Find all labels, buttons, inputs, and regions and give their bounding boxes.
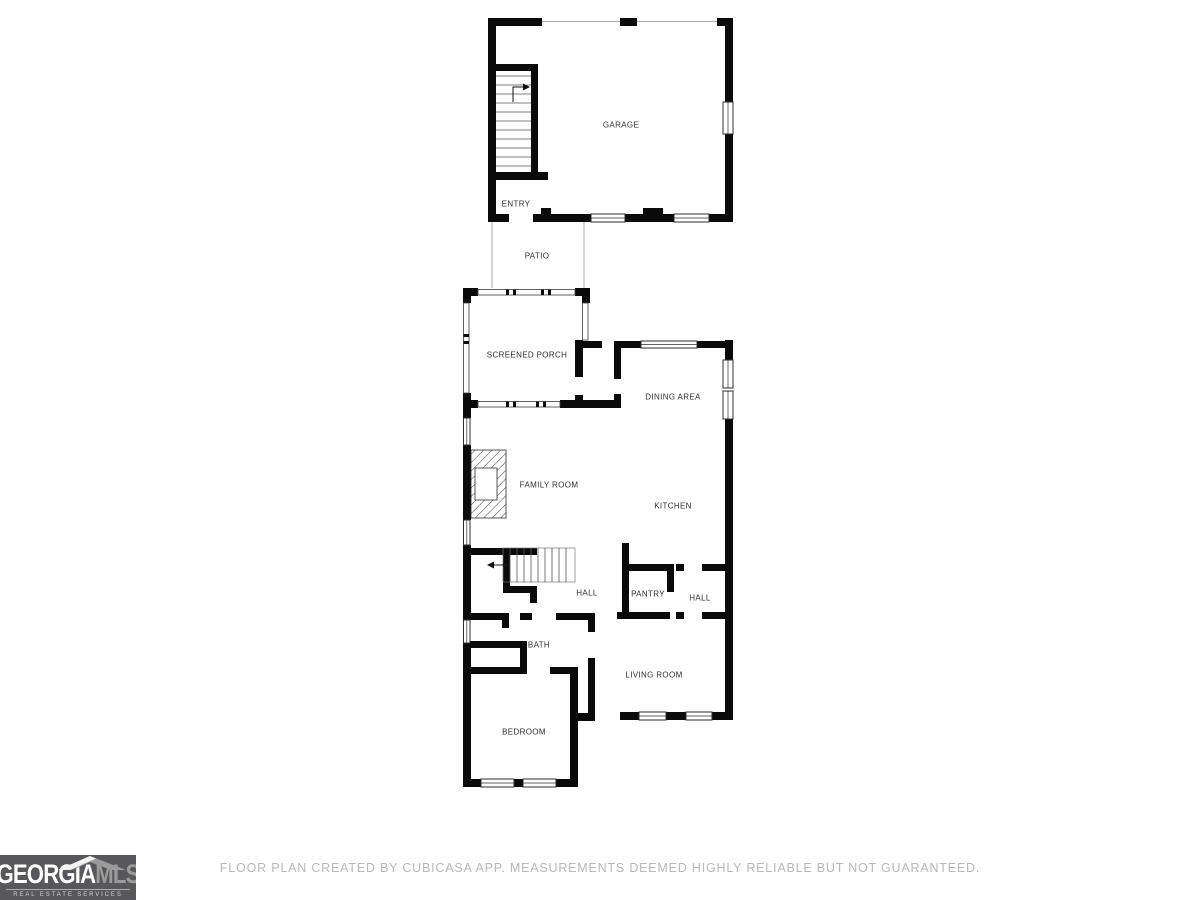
room-label-living-room: LIVING ROOM [625,671,682,680]
floor-plan-drawing [0,0,1200,900]
room-label-family-room: FAMILY ROOM [520,481,579,490]
garage-stairs-up-arrow [513,84,530,103]
room-label-patio: PATIO [525,252,550,261]
roof-icon [58,856,128,871]
room-label-bath: BATH [528,641,550,650]
fireplace [471,450,506,518]
room-label-entry: ENTRY [502,200,531,209]
room-label-pantry: PANTRY [631,590,665,599]
patio-boundary-lines [492,22,717,289]
garage-stairs [496,76,531,166]
room-label-screened-porch: SCREENED PORCH [487,351,567,360]
porch-screen-panels [464,290,589,408]
georgia-mls-logo: GEORGIAMLS REAL ESTATE SERVICES [0,855,136,900]
room-label-hall-right: HALL [689,594,710,603]
porch-screen-ticks [464,290,552,408]
room-label-dining-area: DINING AREA [645,393,700,402]
room-label-garage: GARAGE [603,121,639,130]
room-label-bedroom: BEDROOM [502,728,546,737]
page: GARAGE ENTRY PATIO SCREENED PORCH DINING… [0,0,1200,900]
logo-tagline: REAL ESTATE SERVICES [6,889,130,898]
room-label-kitchen: KITCHEN [654,502,692,511]
footer-disclaimer: FLOOR PLAN CREATED BY CUBICASA APP. MEAS… [0,861,1200,875]
room-label-hall-stairs: HALL [576,589,597,598]
